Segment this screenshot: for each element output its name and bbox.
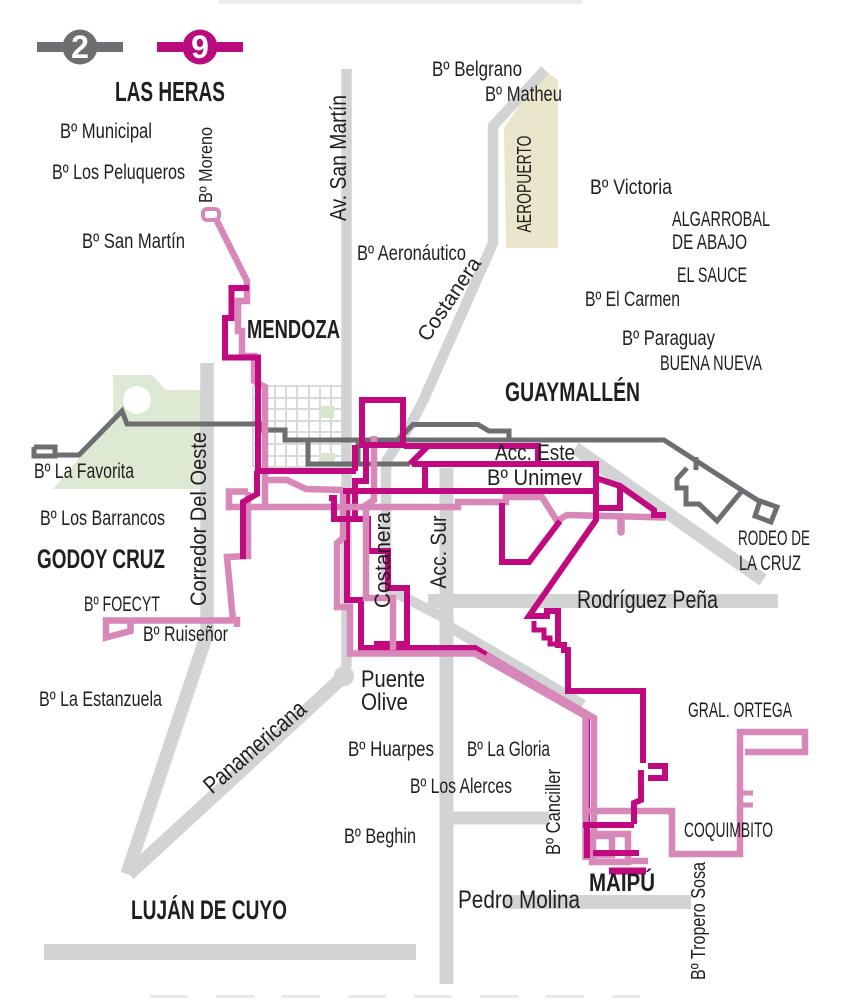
svg-text:Bº La Estanzuela: Bº La Estanzuela bbox=[39, 688, 162, 711]
svg-text:MAIPÚ: MAIPÚ bbox=[589, 867, 655, 897]
svg-text:Bº Tropero Sosa: Bº Tropero Sosa bbox=[688, 861, 710, 980]
svg-text:Bº Aeronáutico: Bº Aeronáutico bbox=[357, 242, 466, 265]
svg-text:LAS HERAS: LAS HERAS bbox=[115, 76, 225, 107]
svg-text:Bº La Gloria: Bº La Gloria bbox=[467, 738, 550, 761]
svg-text:Pedro Molina: Pedro Molina bbox=[458, 886, 580, 914]
svg-text:Bº Paraguay: Bº Paraguay bbox=[622, 327, 715, 350]
svg-text:Costanera: Costanera bbox=[370, 511, 395, 608]
svg-text:Bº Moreno: Bº Moreno bbox=[196, 127, 216, 203]
svg-text:LUJÁN DE CUYO: LUJÁN DE CUYO bbox=[131, 894, 287, 925]
svg-text:GUAYMALLÉN: GUAYMALLÉN bbox=[505, 376, 640, 407]
svg-text:Av. San Martín: Av. San Martín bbox=[325, 95, 351, 221]
svg-text:Bº Los Alerces: Bº Los Alerces bbox=[410, 775, 512, 798]
svg-text:Acc. Sur: Acc. Sur bbox=[426, 516, 451, 589]
svg-text:Bº Unimev: Bº Unimev bbox=[487, 465, 582, 490]
svg-text:Bº Belgrano: Bº Belgrano bbox=[432, 58, 522, 81]
svg-text:MENDOZA: MENDOZA bbox=[247, 314, 340, 344]
svg-text:DE ABAJO: DE ABAJO bbox=[672, 231, 747, 254]
svg-text:Acc. Este: Acc. Este bbox=[495, 440, 575, 465]
svg-text:Bº Beghin: Bº Beghin bbox=[344, 825, 416, 848]
svg-text:BUENA NUEVA: BUENA NUEVA bbox=[660, 352, 762, 375]
svg-text:Bº Matheu: Bº Matheu bbox=[485, 83, 562, 106]
svg-text:Bº Ruiseñor: Bº Ruiseñor bbox=[143, 623, 228, 646]
svg-text:AEROPUERTO: AEROPUERTO bbox=[514, 136, 536, 233]
svg-text:RODEO DE: RODEO DE bbox=[738, 527, 810, 550]
svg-text:Bº Huarpes: Bº Huarpes bbox=[348, 738, 434, 761]
svg-text:Rodríguez Peña: Rodríguez Peña bbox=[577, 586, 718, 614]
svg-text:Bº La Favorita: Bº La Favorita bbox=[34, 460, 134, 483]
svg-text:Bº Canciller: Bº Canciller bbox=[543, 769, 565, 855]
svg-text:Bº FOECYT: Bº FOECYT bbox=[84, 593, 160, 616]
svg-text:Olive: Olive bbox=[361, 689, 408, 716]
svg-text:GODOY CRUZ: GODOY CRUZ bbox=[37, 544, 165, 574]
svg-text:ALGARROBAL: ALGARROBAL bbox=[672, 208, 770, 231]
svg-text:Bº Los Barrancos: Bº Los Barrancos bbox=[40, 507, 165, 530]
svg-text:COQUIMBITO: COQUIMBITO bbox=[684, 819, 773, 842]
svg-text:Bº Victoria: Bº Victoria bbox=[590, 176, 672, 199]
svg-text:2: 2 bbox=[71, 29, 89, 65]
svg-text:Bº El Carmen: Bº El Carmen bbox=[585, 288, 680, 311]
svg-text:GRAL. ORTEGA: GRAL. ORTEGA bbox=[688, 699, 792, 722]
svg-text:Bº San Martín: Bº San Martín bbox=[82, 230, 185, 253]
svg-text:9: 9 bbox=[191, 29, 209, 65]
svg-text:Bº Los Peluqueros: Bº Los Peluqueros bbox=[52, 161, 185, 184]
svg-text:Bº Municipal: Bº Municipal bbox=[60, 120, 152, 143]
svg-text:EL SAUCE: EL SAUCE bbox=[677, 264, 747, 287]
svg-text:LA CRUZ: LA CRUZ bbox=[739, 552, 801, 575]
svg-text:Corredor Del Oeste: Corredor Del Oeste bbox=[186, 432, 211, 606]
